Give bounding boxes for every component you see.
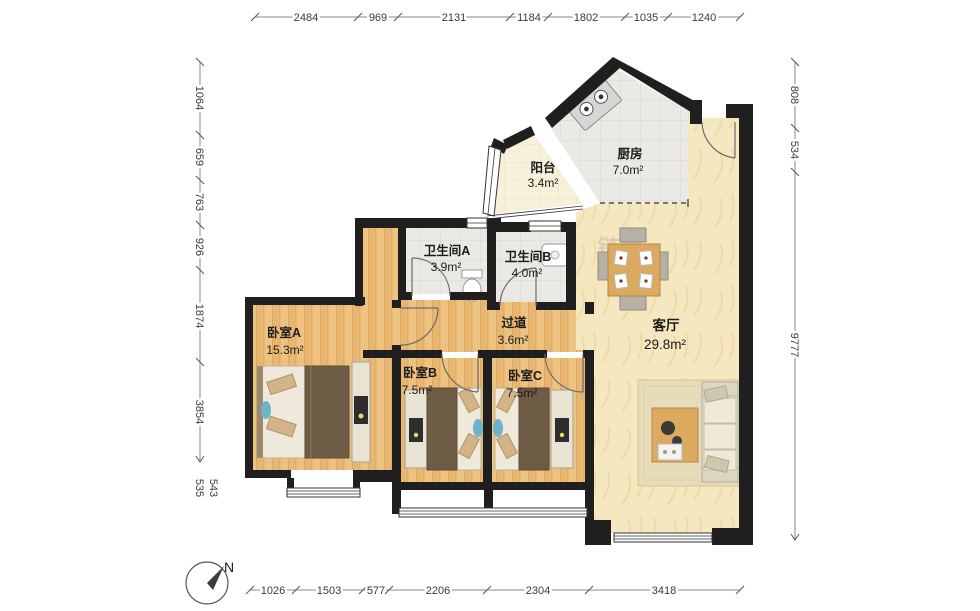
window-living-room bbox=[614, 533, 712, 542]
bed-b-name-label: 卧室B bbox=[403, 365, 437, 380]
floor-plan: 链家 bbox=[0, 0, 980, 611]
dim-left-6: 535 bbox=[193, 479, 205, 497]
dim-top-1: 969 bbox=[369, 12, 387, 24]
dimension-bottom: 1026 1503 577 2206 2304 3418 bbox=[246, 585, 744, 597]
dim-top-3: 1184 bbox=[517, 12, 541, 24]
dim-left-0: 1064 bbox=[193, 86, 205, 110]
bed-a-name-label: 卧室A bbox=[267, 325, 301, 340]
dimension-right: 808 534 9777 bbox=[788, 58, 800, 540]
bed-c-area-label: 7.5m² bbox=[507, 386, 538, 400]
dim-bottom-3: 2206 bbox=[426, 585, 450, 597]
dim-left-2: 763 bbox=[193, 193, 205, 211]
living-name-label: 客厅 bbox=[652, 317, 681, 333]
bath-a-name-label: 卫生间A bbox=[424, 243, 471, 258]
dim-bottom-4: 2304 bbox=[526, 585, 550, 597]
dim-bottom-5: 3418 bbox=[652, 585, 676, 597]
dimension-left: 1064 659 763 926 1874 3854 535 543 bbox=[193, 58, 219, 497]
dim-top-4: 1802 bbox=[574, 12, 598, 24]
dim-top-6: 1240 bbox=[692, 12, 716, 24]
wardrobe-a-icon bbox=[352, 362, 370, 462]
floorplan-canvas: 链家 bbox=[0, 0, 980, 611]
dim-left-7: 543 bbox=[207, 479, 219, 497]
balcony-area-label: 3.4m² bbox=[528, 176, 559, 190]
bed-c-name-label: 卧室C bbox=[508, 368, 542, 383]
window-bedroom-a-bay bbox=[287, 488, 360, 497]
dim-top-2: 2131 bbox=[442, 12, 466, 24]
hall-name-label: 过道 bbox=[501, 315, 527, 330]
dim-top-0: 2484 bbox=[294, 12, 318, 24]
dim-bottom-0: 1026 bbox=[261, 585, 285, 597]
bed-a-area-label: 15.3m² bbox=[266, 343, 303, 357]
dim-left-1: 659 bbox=[193, 148, 205, 166]
sofa-icon bbox=[702, 382, 738, 482]
dimension-top: 2484 969 2131 1184 1802 1035 1240 bbox=[251, 12, 744, 24]
compass-icon: N bbox=[186, 559, 234, 604]
window-bedroom-bc-bay bbox=[399, 508, 587, 517]
kitchen-name-label: 厨房 bbox=[617, 146, 642, 161]
dim-bottom-1: 1503 bbox=[317, 585, 341, 597]
balcony-name-label: 阳台 bbox=[530, 160, 555, 175]
bed-a-icon bbox=[257, 366, 349, 458]
dim-left-3: 926 bbox=[193, 238, 205, 256]
living-area-label: 29.8m² bbox=[644, 337, 687, 352]
dim-bottom-2: 577 bbox=[367, 585, 385, 597]
dim-left-5: 3854 bbox=[193, 400, 205, 424]
dim-right-2: 9777 bbox=[788, 333, 800, 357]
bed-b-area-label: 7.5m² bbox=[402, 383, 433, 397]
bed-b-icon bbox=[405, 387, 483, 470]
dim-right-0: 808 bbox=[788, 86, 800, 104]
hall-area-label: 3.6m² bbox=[498, 333, 529, 347]
bath-b-name-label: 卫生间B bbox=[505, 249, 552, 264]
dim-left-4: 1874 bbox=[193, 304, 205, 328]
dim-top-5: 1035 bbox=[634, 12, 658, 24]
north-label: N bbox=[224, 559, 234, 575]
coffee-table-icon bbox=[652, 408, 698, 462]
bath-b-area-label: 4.0m² bbox=[512, 266, 543, 280]
bath-a-area-label: 3.9m² bbox=[431, 260, 462, 274]
kitchen-area-label: 7.0m² bbox=[613, 163, 644, 177]
dim-right-1: 534 bbox=[788, 141, 800, 159]
bedroom-a-entry-floor bbox=[363, 228, 401, 310]
